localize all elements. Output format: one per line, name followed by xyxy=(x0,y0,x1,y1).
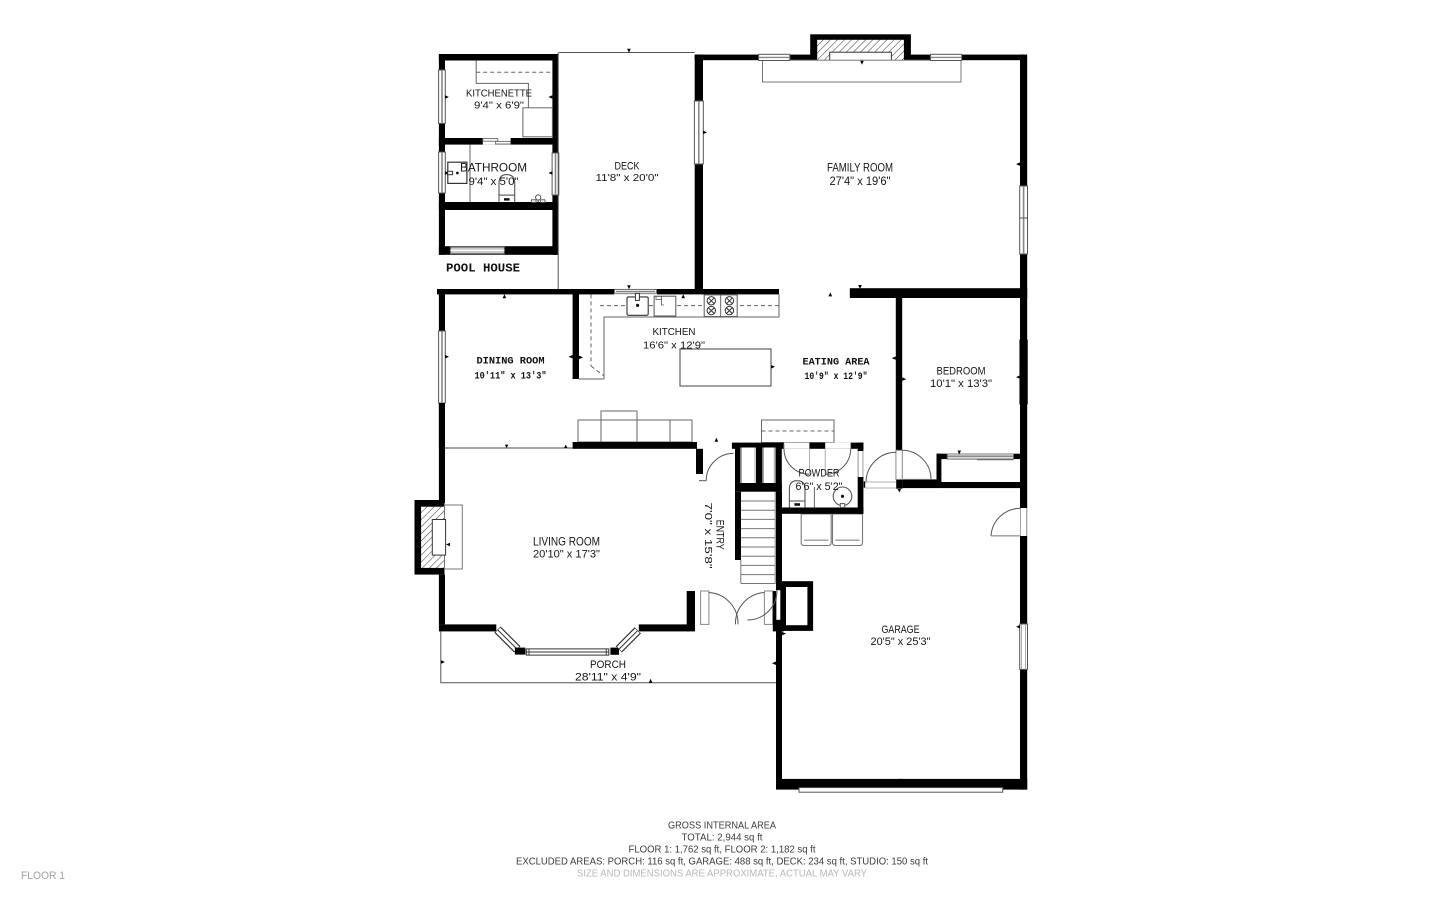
svg-text:DINING ROOM: DINING ROOM xyxy=(477,356,545,368)
svg-text:LIVING ROOM: LIVING ROOM xyxy=(533,534,600,548)
svg-text:GROSS INTERNAL AREA: GROSS INTERNAL AREA xyxy=(668,821,776,832)
svg-text:SIZE AND DIMENSIONS ARE APPROX: SIZE AND DIMENSIONS ARE APPROXIMATE, ACT… xyxy=(577,869,867,880)
svg-text:KITCHEN: KITCHEN xyxy=(653,327,696,338)
svg-text:KITCHENETTE: KITCHENETTE xyxy=(466,89,532,100)
svg-text:27'4" x 19'6": 27'4" x 19'6" xyxy=(830,174,891,188)
svg-text:11'8" x 20'0": 11'8" x 20'0" xyxy=(596,173,659,184)
svg-text:9'4" x 6'9": 9'4" x 6'9" xyxy=(474,101,525,112)
svg-text:POOL HOUSE: POOL HOUSE xyxy=(446,262,520,276)
svg-text:20'10" x 17'3": 20'10" x 17'3" xyxy=(533,549,600,561)
svg-text:10'1" x 13'3": 10'1" x 13'3" xyxy=(930,378,992,390)
svg-text:16'6" x 12'9": 16'6" x 12'9" xyxy=(643,341,706,352)
svg-text:PORCH: PORCH xyxy=(590,659,626,671)
svg-text:FLOOR 1: 1,762 sq ft, FLOOR 2:: FLOOR 1: 1,762 sq ft, FLOOR 2: 1,182 sq … xyxy=(629,845,816,856)
svg-text:BATHROOM: BATHROOM xyxy=(460,162,527,175)
svg-text:10'11" x 13'3": 10'11" x 13'3" xyxy=(475,371,547,383)
svg-text:EATING AREA: EATING AREA xyxy=(803,357,871,369)
svg-text:EXCLUDED AREAS: PORCH: 116 sq: EXCLUDED AREAS: PORCH: 116 sq ft, GARAGE… xyxy=(516,857,928,868)
svg-text:DECK: DECK xyxy=(615,161,640,173)
svg-text:9'4" x 5'0": 9'4" x 5'0" xyxy=(469,176,519,188)
svg-text:POWDER: POWDER xyxy=(799,468,840,480)
svg-text:FAMILY ROOM: FAMILY ROOM xyxy=(827,161,893,175)
svg-text:ENTRY: ENTRY xyxy=(714,520,726,550)
svg-text:GARAGE: GARAGE xyxy=(882,624,920,636)
svg-text:28'11" x 4'9": 28'11" x 4'9" xyxy=(575,672,641,684)
svg-text:6'6" x 5'2": 6'6" x 5'2" xyxy=(796,481,843,493)
svg-text:20'5" x 25'3": 20'5" x 25'3" xyxy=(871,636,931,648)
svg-text:10'9" x 12'9": 10'9" x 12'9" xyxy=(805,371,868,383)
svg-text:7'0" x 15'8": 7'0" x 15'8" xyxy=(702,503,713,569)
svg-text:FLOOR 1: FLOOR 1 xyxy=(21,870,65,882)
svg-text:TOTAL: 2,944 sq ft: TOTAL: 2,944 sq ft xyxy=(682,833,763,844)
svg-text:BEDROOM: BEDROOM xyxy=(937,366,986,378)
